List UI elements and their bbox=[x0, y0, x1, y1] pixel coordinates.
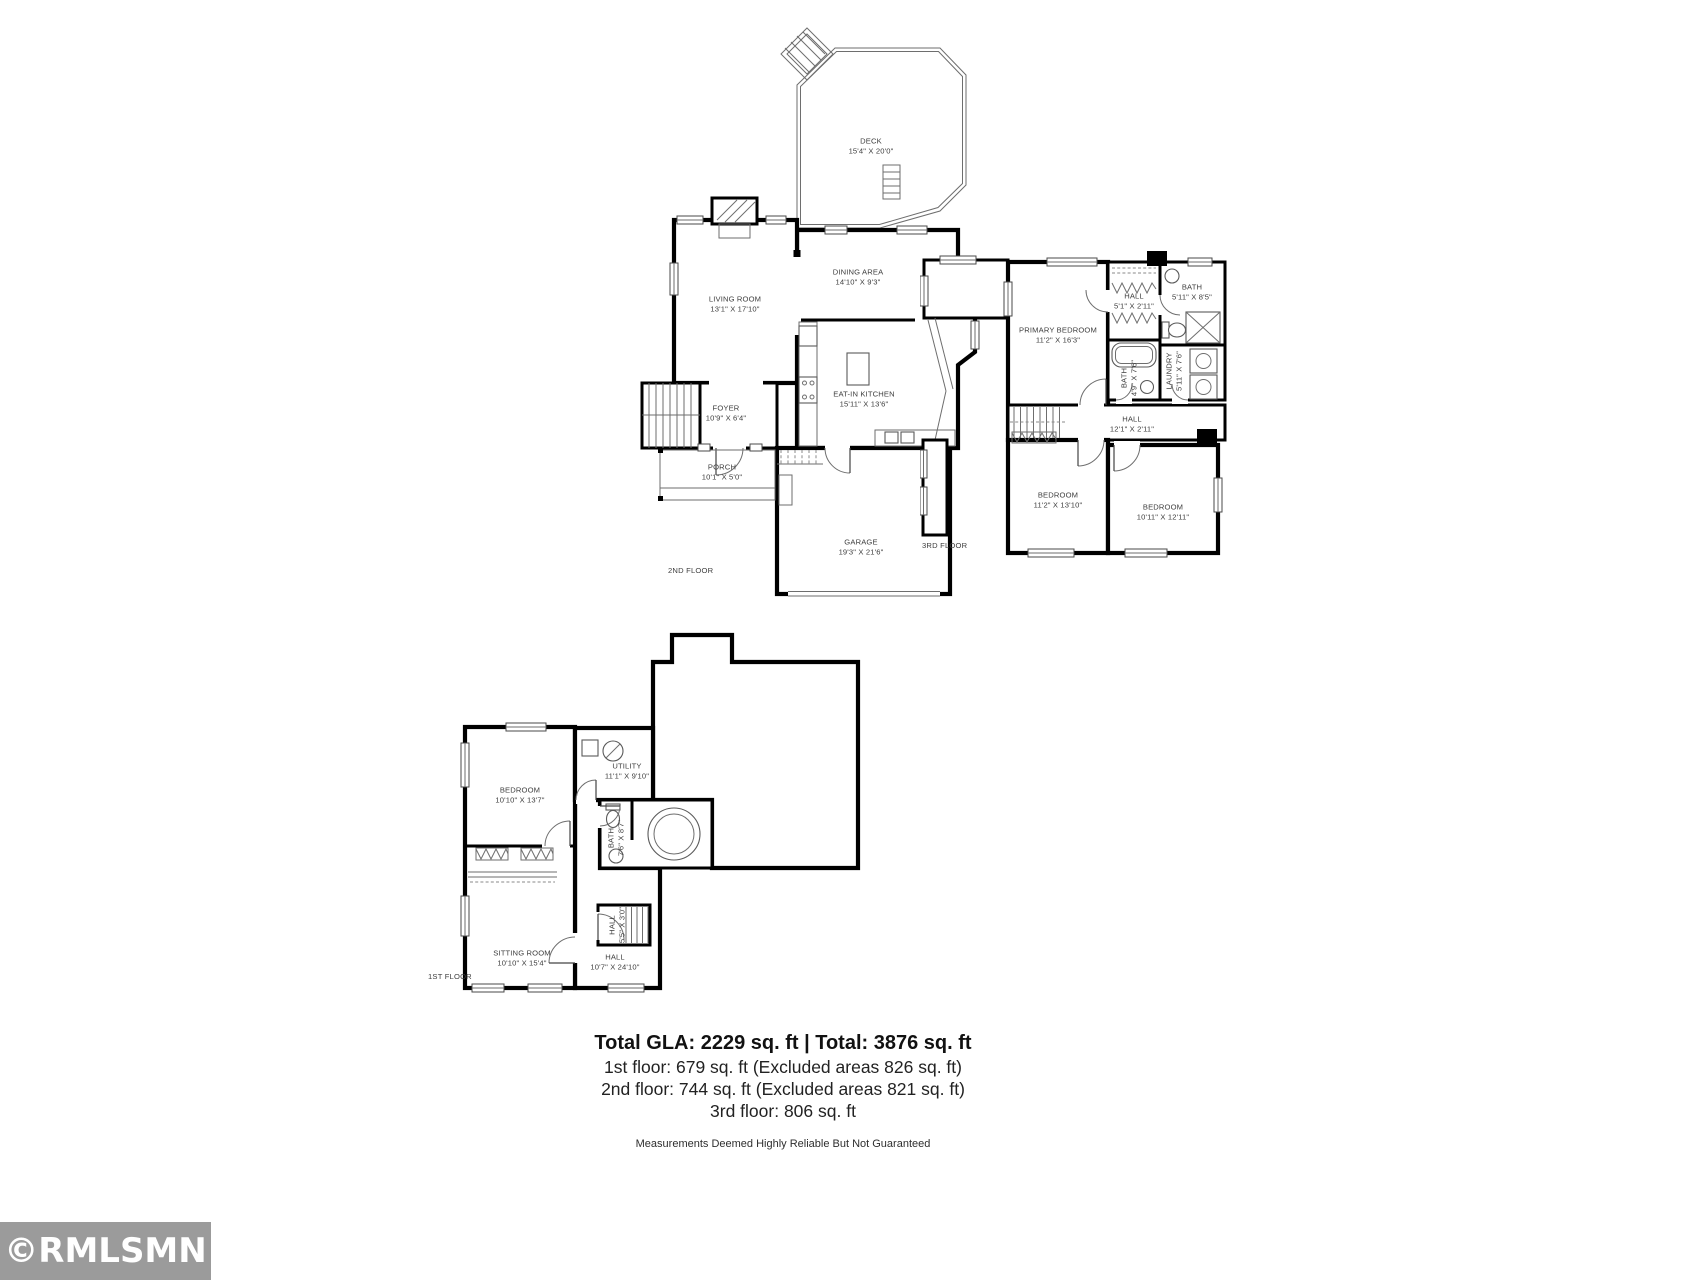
room-label-primary-bedroom: PRIMARY BEDROOM 11'2" X 16'3" bbox=[1019, 325, 1097, 344]
room-label-laundry: LAUNDRY 5'11" X 7'6" bbox=[1164, 351, 1183, 391]
room-label-hall-entry: HALL 5'5" X 3'0" bbox=[607, 907, 626, 943]
total-gla-line: Total GLA: 2229 sq. ft | Total: 3876 sq.… bbox=[433, 1030, 1133, 1056]
room-label-porch: PORCH 10'1" X 5'0" bbox=[702, 462, 743, 481]
deck-outline bbox=[781, 28, 966, 228]
room-label-bedroom-right: BEDROOM 10'11" X 12'11" bbox=[1137, 502, 1189, 521]
room-label-bath: BATH 7'6" X 8'7" bbox=[606, 820, 625, 856]
room-label-sitting-room: SITTING ROOM 10'10" X 15'4" bbox=[493, 948, 551, 967]
room-label-bedroom-left: BEDROOM 11'2" X 13'10" bbox=[1034, 490, 1083, 509]
floorplan-page: DECK 15'4" X 20'0" LIVING ROOM 13'1" X 1… bbox=[0, 0, 1706, 1280]
room-label-dining-area: DINING AREA 14'10" X 9'3" bbox=[833, 267, 884, 286]
room-label-foyer: FOYER 10'9" X 6'4" bbox=[706, 403, 747, 422]
room-label-garage: GARAGE 19'3" X 21'6" bbox=[839, 537, 884, 556]
room-label-living-room: LIVING ROOM 13'1" X 17'10" bbox=[709, 294, 761, 313]
area-summary: Total GLA: 2229 sq. ft | Total: 3876 sq.… bbox=[433, 1030, 1133, 1151]
room-label-hall-main: HALL 12'1" X 2'11" bbox=[1110, 414, 1154, 433]
room-label-hall: HALL 10'7" X 24'10" bbox=[590, 952, 639, 971]
room-label-bath-middle: BATH 4'9" X 7'6" bbox=[1119, 360, 1138, 396]
first-floor-plan-drawing bbox=[420, 628, 870, 996]
room-label-deck: DECK 15'4" X 20'0" bbox=[849, 136, 894, 155]
room-label-bedroom: BEDROOM 10'10" X 13'7" bbox=[495, 785, 544, 804]
floor-label-1st: 1ST FLOOR bbox=[428, 972, 472, 981]
third-floor-plan: PRIMARY BEDROOM 11'2" X 16'3" HALL 5'1" … bbox=[920, 235, 1230, 560]
room-label-kitchen: EAT-IN KITCHEN 15'11" X 13'6" bbox=[833, 389, 894, 408]
room-label-utility: UTILITY 11'1" X 9'10" bbox=[605, 761, 649, 780]
floor-label-3rd: 3RD FLOOR bbox=[922, 541, 967, 550]
room-label-bath-right: BATH 5'11" X 8'5" bbox=[1172, 282, 1212, 301]
first-floor-area-line: 1st floor: 679 sq. ft (Excluded areas 82… bbox=[433, 1056, 1133, 1078]
first-floor-plan: BEDROOM 10'10" X 13'7" UTILITY 11'1" X 9… bbox=[420, 628, 870, 996]
rmls-watermark: ©RMLSMN bbox=[0, 1222, 211, 1280]
disclaimer-text: Measurements Deemed Highly Reliable But … bbox=[433, 1138, 1133, 1151]
floor-label-2nd: 2ND FLOOR bbox=[668, 566, 713, 575]
second-floor-area-line: 2nd floor: 744 sq. ft (Excluded areas 82… bbox=[433, 1078, 1133, 1100]
left-wing-outline bbox=[923, 260, 1008, 535]
third-floor-area-line: 3rd floor: 806 sq. ft bbox=[433, 1100, 1133, 1122]
room-label-hall-upper: HALL 5'1" X 2'11" bbox=[1114, 291, 1154, 310]
